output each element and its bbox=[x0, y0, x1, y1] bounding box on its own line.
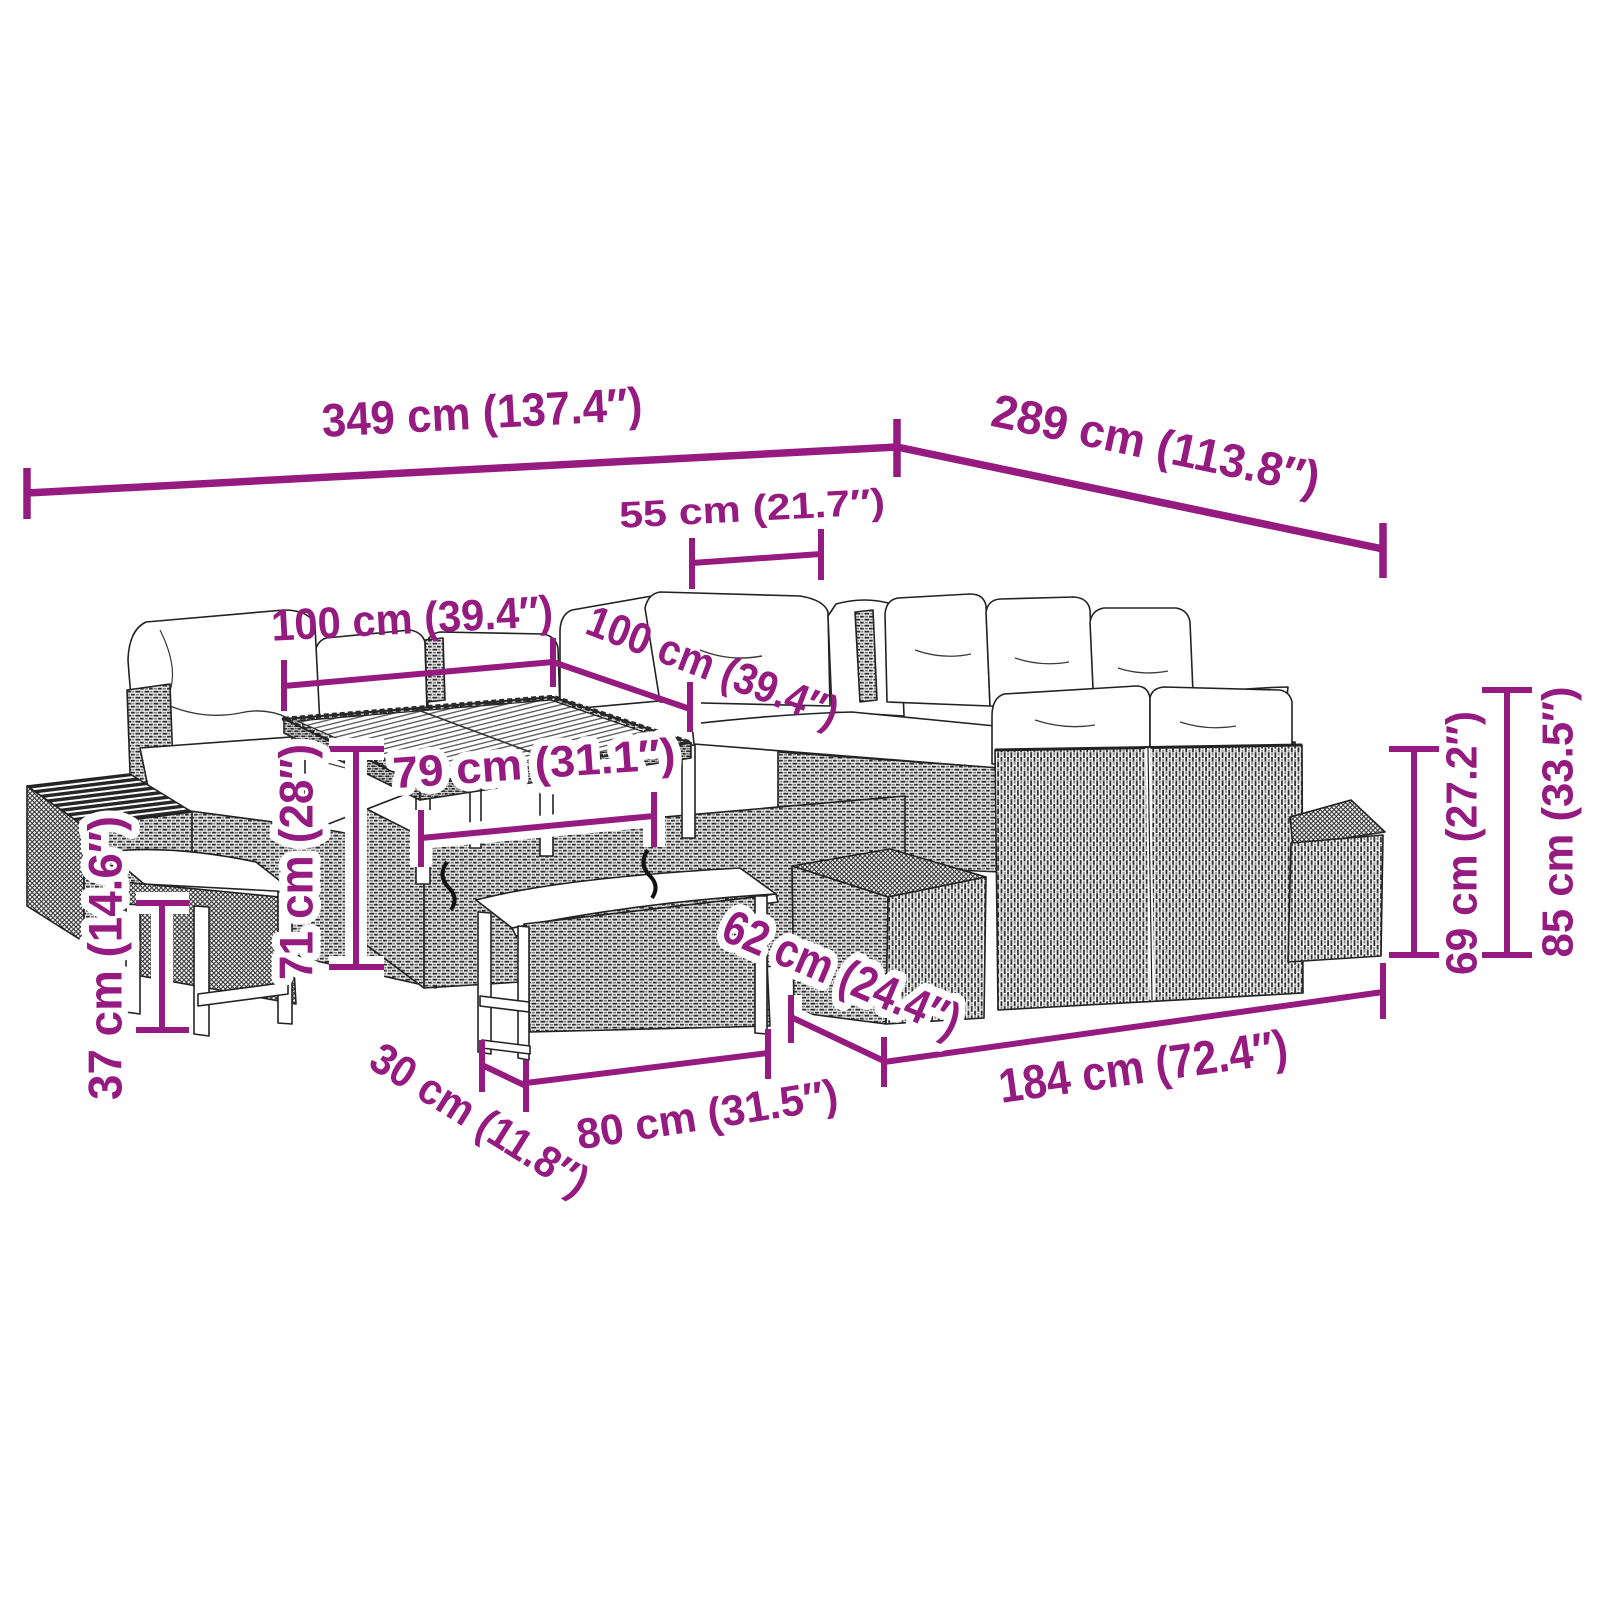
svg-text:71 cm (28″): 71 cm (28″) bbox=[269, 744, 322, 980]
svg-text:69 cm (27.2″): 69 cm (27.2″) bbox=[1437, 711, 1486, 975]
svg-text:37 cm (14.6″): 37 cm (14.6″) bbox=[78, 816, 131, 1100]
svg-text:85 cm (33.5″): 85 cm (33.5″) bbox=[1533, 687, 1582, 958]
